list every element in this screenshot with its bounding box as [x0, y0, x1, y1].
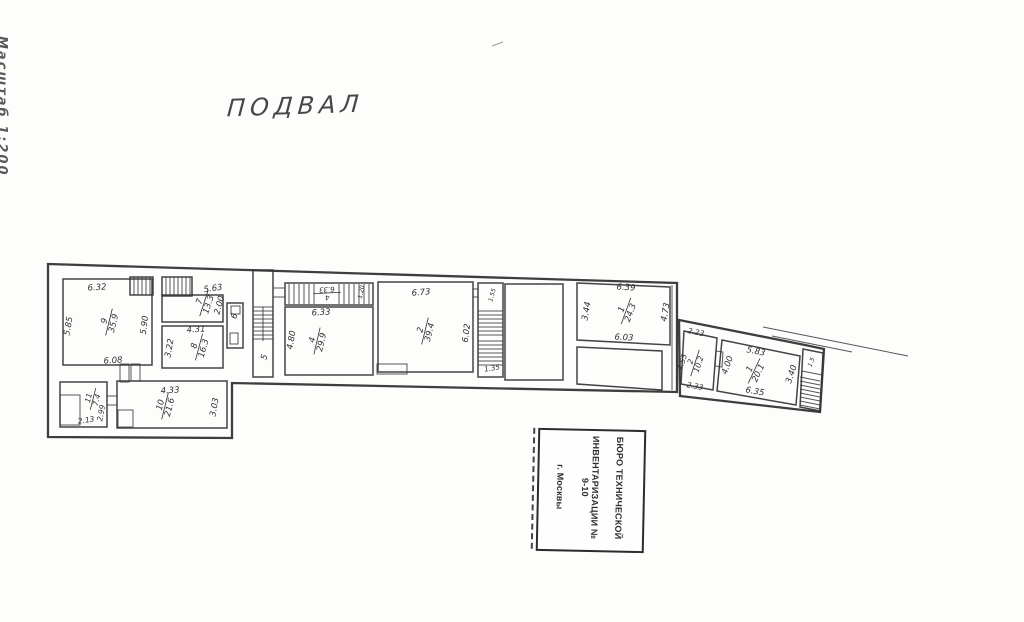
- svg-text:6.02: 6.02: [461, 323, 473, 343]
- scanned-floor-plan-page: Масштаб 1:200 ПОДВАЛ 6.325.855.906.085.6…: [0, 0, 1024, 622]
- dimension-label: 4.80: [285, 330, 298, 350]
- svg-text:6: 6: [229, 312, 240, 321]
- dimension-label: 6.73: [411, 287, 431, 299]
- room-wall: [118, 410, 133, 427]
- room-wall: [131, 364, 140, 381]
- svg-text:6.33: 6.33: [319, 285, 335, 294]
- svg-text:6.39: 6.39: [616, 282, 635, 293]
- svg-text:5.63: 5.63: [203, 283, 223, 296]
- svg-text:20.1: 20.1: [750, 363, 767, 384]
- dimension-label: 5.83: [746, 345, 766, 358]
- room-wall: [505, 284, 563, 380]
- stamp-line-1: БЮРО ТЕХНИЧЕСКОЙ: [613, 437, 625, 540]
- svg-text:35.9: 35.9: [107, 313, 121, 334]
- svg-text:4.33: 4.33: [160, 385, 179, 396]
- svg-text:6.73: 6.73: [411, 287, 431, 299]
- dimension-label: 6.33: [311, 307, 330, 318]
- svg-text:21.6: 21.6: [163, 396, 177, 417]
- dimension-label: 3.22: [163, 338, 176, 358]
- svg-text:6.03: 6.03: [614, 332, 633, 343]
- dimension-label: 5.63: [203, 283, 223, 296]
- dimension-label: 1.5: [807, 356, 817, 368]
- svg-text:1.20: 1.20: [357, 285, 366, 300]
- dimension-label: 1.35: [484, 363, 501, 374]
- room-number-area-label: 120.1: [740, 355, 769, 388]
- svg-text:4.80: 4.80: [285, 330, 298, 350]
- floor-plan-drawing: 6.325.855.906.085.632.0064.313.2254.806.…: [0, 0, 1024, 622]
- dimension-label: 4.33: [160, 385, 179, 396]
- dimension-label: 1.20: [357, 285, 366, 300]
- room-number-area-label: 46.33: [313, 284, 341, 301]
- dimension-label: 6: [229, 312, 240, 321]
- svg-text:6.08: 6.08: [103, 355, 123, 366]
- stair-hatch: [800, 401, 820, 405]
- svg-text:2.33: 2.33: [686, 380, 704, 392]
- svg-text:1.5: 1.5: [807, 356, 817, 368]
- dimension-labels-layer: 6.325.855.906.085.632.0064.313.2254.806.…: [62, 282, 816, 425]
- svg-text:6.33: 6.33: [311, 307, 330, 318]
- walls-layer: [48, 42, 908, 438]
- svg-text:5.90: 5.90: [139, 315, 151, 335]
- room-number-area-label: 816.3: [187, 331, 213, 363]
- dimension-label: 2.13: [77, 414, 95, 425]
- svg-text:39.4: 39.4: [423, 322, 437, 343]
- dimension-label: 5: [259, 353, 270, 361]
- room-number-area-label: 429.9: [305, 325, 330, 356]
- room-number-area-label: 935.9: [97, 306, 123, 337]
- stamp-line-2: ИНВЕНТАРИЗАЦИИ № 9-10: [579, 431, 601, 544]
- wall-line: [492, 42, 503, 46]
- stair-hatch: [800, 389, 820, 393]
- stair-hatch: [800, 385, 820, 389]
- svg-text:2.13: 2.13: [77, 414, 95, 425]
- svg-text:6.32: 6.32: [87, 282, 107, 293]
- svg-text:24.3: 24.3: [623, 302, 639, 323]
- svg-text:5: 5: [259, 353, 270, 361]
- room-wall: [577, 347, 662, 390]
- dimension-label: 5.85: [62, 316, 75, 336]
- stair-hatch: [800, 393, 820, 397]
- room-wall: [230, 333, 238, 344]
- svg-text:3.03: 3.03: [208, 397, 221, 417]
- svg-text:5.83: 5.83: [746, 345, 766, 358]
- room-number-area-label: 239.4: [413, 315, 439, 346]
- dimension-label: 6.39: [616, 282, 635, 293]
- dimension-label: 4.31: [186, 324, 206, 335]
- bti-stamp-text: БЮРО ТЕХНИЧЕСКОЙ ИНВЕНТАРИЗАЦИИ № 9-10 г…: [540, 430, 640, 545]
- svg-text:2.23: 2.23: [687, 326, 705, 338]
- dimension-label: 2.33: [686, 380, 704, 392]
- stamp-line-3: г. Москвы: [555, 464, 566, 509]
- room-wall: [227, 303, 243, 348]
- svg-text:3.44: 3.44: [580, 301, 593, 321]
- dimension-label: 6.08: [103, 355, 123, 366]
- dimension-label: 5.90: [139, 315, 151, 335]
- dimension-label: 6.03: [614, 332, 633, 343]
- svg-text:29.9: 29.9: [315, 332, 329, 353]
- dimension-label: 3.03: [208, 397, 221, 417]
- dimension-label: 6.32: [87, 282, 107, 293]
- stair-hatch: [800, 381, 820, 385]
- dimension-label: 3.44: [580, 301, 593, 321]
- svg-text:4: 4: [325, 293, 330, 301]
- dimension-label: 1.55: [487, 288, 497, 303]
- bti-stamp: БЮРО ТЕХНИЧЕСКОЙ ИНВЕНТАРИЗАЦИИ № 9-10 г…: [536, 428, 647, 553]
- svg-text:5.85: 5.85: [62, 316, 75, 336]
- room-wall: [120, 364, 129, 382]
- svg-text:1.35: 1.35: [484, 363, 501, 374]
- dimension-label: 6.02: [461, 323, 473, 343]
- svg-text:10.2: 10.2: [692, 355, 706, 374]
- stair-hatch: [800, 397, 820, 401]
- wall-line: [772, 336, 852, 352]
- dimension-label: 2.23: [687, 326, 705, 338]
- svg-text:1.55: 1.55: [487, 288, 497, 303]
- stair-hatch: [800, 377, 820, 381]
- room-number-area-label: 210.2: [682, 347, 707, 379]
- svg-text:4.31: 4.31: [186, 324, 206, 335]
- svg-text:16.3: 16.3: [197, 338, 212, 359]
- wall-line: [802, 371, 822, 375]
- svg-text:3.22: 3.22: [163, 338, 176, 358]
- room-number-area-label: 124.3: [613, 295, 641, 328]
